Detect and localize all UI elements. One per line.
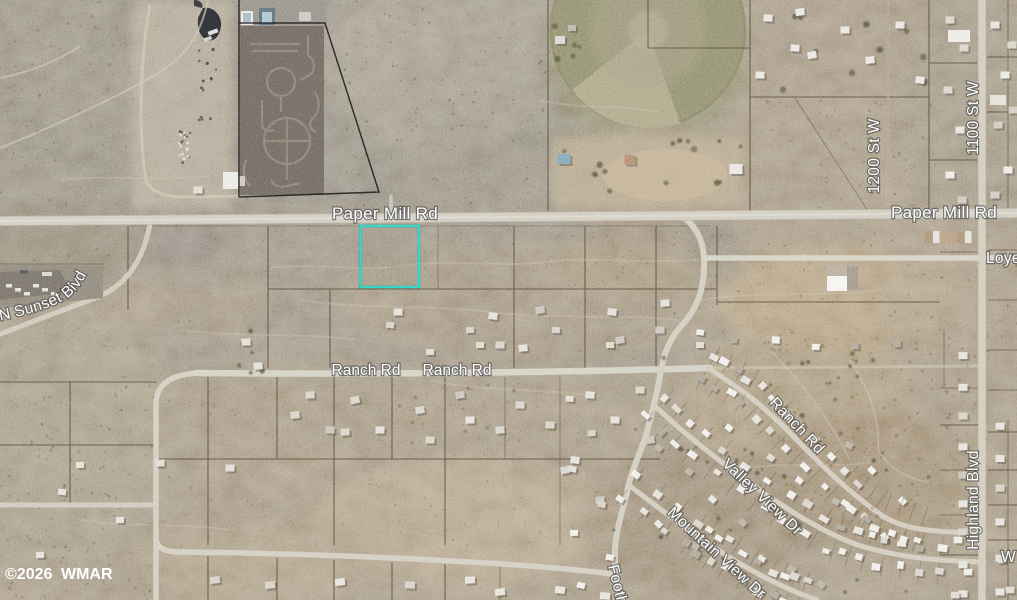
svg-text:Ranch Rd: Ranch Rd [423,362,492,379]
svg-text:Paper Mill Rd: Paper Mill Rd [332,204,438,223]
svg-text:Highland Blvd: Highland Blvd [965,450,982,550]
svg-text:Paper Mill Rd: Paper Mill Rd [891,203,997,222]
svg-text:W Ced: W Ced [1001,549,1017,566]
svg-text:Loyer Dr: Loyer Dr [986,250,1017,267]
svg-text:©2026: ©2026 [5,566,52,583]
svg-text:1200 St W: 1200 St W [866,118,883,193]
svg-text:1100 St W: 1100 St W [965,81,982,155]
svg-text:WMAR: WMAR [61,566,113,583]
svg-text:Ranch Rd: Ranch Rd [332,362,401,379]
